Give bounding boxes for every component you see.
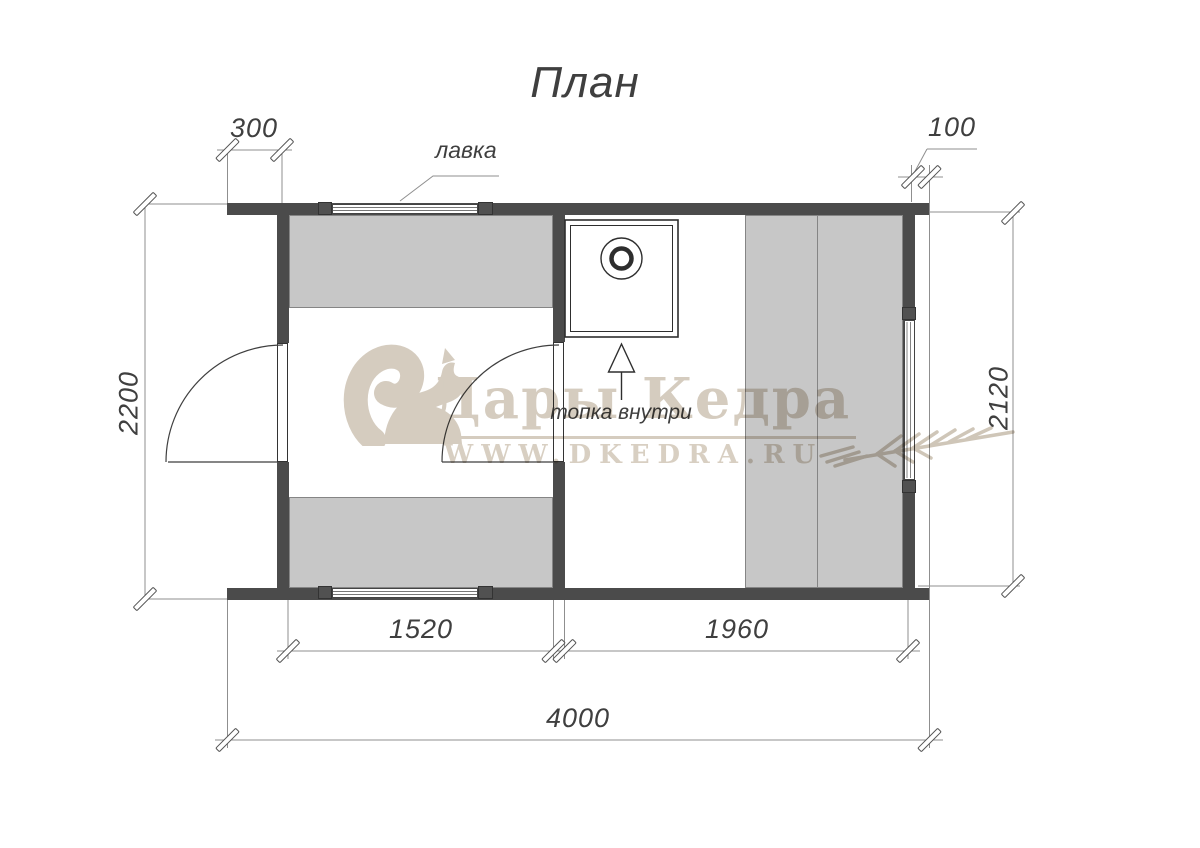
watermark-site: WWW.DKEDRA.RU [444,440,764,470]
bench-steam-room-divider [817,215,818,588]
stove-direction-arrow [609,344,635,400]
label-bench: лавка [416,137,516,164]
stove-body [565,220,678,337]
bench-label-leader [400,176,499,201]
window-bottom [332,588,478,598]
wall-left-upper [277,215,289,343]
door-swing-arc-entrance [166,345,283,462]
dim-porch-width: 300 [214,113,294,144]
dim-room-left: 1520 [361,614,481,645]
plan-title: План [500,58,670,108]
window-top [332,204,478,214]
window-end-block [318,202,332,215]
dim-height-right: 2120 [984,366,1015,430]
dim-right-offset: 100 [912,112,992,143]
stove-chimney-outer [601,238,642,279]
window-end-block [478,202,493,215]
wall-middle-upper [553,215,565,342]
window-end-block [902,307,916,320]
bench-steam-room [745,215,903,588]
stove-chimney-inner [612,249,632,269]
wall-left-lower [277,462,289,588]
dim-height-left: 2200 [114,371,145,435]
window-right [904,320,915,480]
window-end-block [318,586,332,599]
squirrel-logo-icon [338,330,468,446]
label-stove-note: топка внутри [541,401,701,425]
dim-room-right: 1960 [677,614,797,645]
bench-dressing-room-bottom [289,497,553,588]
dim-total-width: 4000 [518,703,638,734]
stove-inner-outline [571,226,673,332]
door-leaf-entrance [277,343,288,462]
window-end-block [478,586,493,599]
window-end-block [902,480,916,493]
wall-middle-lower [553,462,565,588]
bench-dressing-room-top [289,215,553,308]
floor-plan: План [0,0,1200,848]
